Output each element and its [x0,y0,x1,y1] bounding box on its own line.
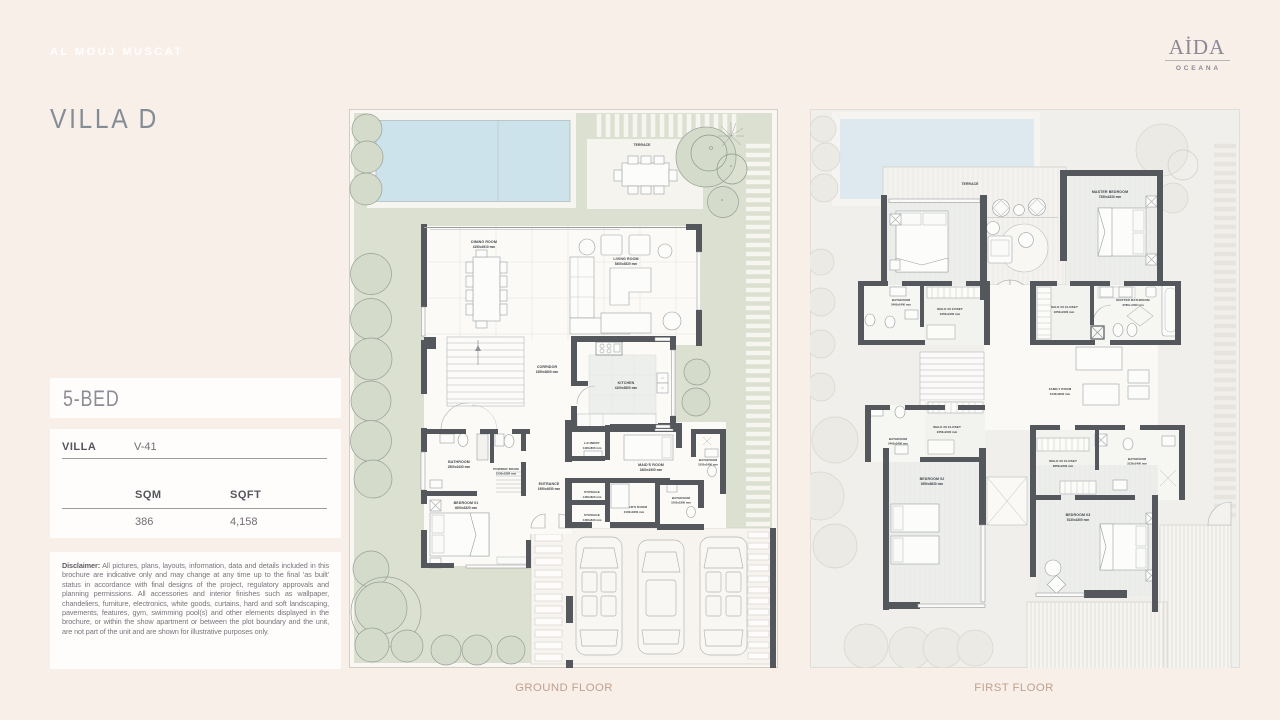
svg-text:1400x800 mm: 1400x800 mm [583,446,602,450]
svg-text:1550x2400 mm: 1550x2400 mm [698,463,718,467]
svg-text:2500x2430 mm: 2500x2430 mm [448,465,471,469]
svg-text:BEDROOM 01: BEDROOM 01 [454,501,479,505]
svg-text:BEDROOM 03: BEDROOM 03 [1066,513,1091,517]
svg-text:7350x4330 mm: 7350x4330 mm [1099,195,1122,199]
svg-text:4150x4910 mm: 4150x4910 mm [473,245,496,249]
svg-text:WALK IN CLOSET: WALK IN CLOSET [1050,305,1078,309]
svg-text:WALK IN COSET: WALK IN COSET [937,307,963,311]
svg-text:5400x4520 mm: 5400x4520 mm [615,262,638,266]
svg-text:1400x830 mm: 1400x830 mm [583,518,602,522]
svg-text:1950x4050 mm: 1950x4050 mm [538,487,561,491]
svg-text:BATHROOM: BATHROOM [699,458,718,462]
svg-text:2250x2400 mm: 2250x2400 mm [1054,310,1075,314]
svg-text:3130x2400 mm: 3130x2400 mm [1127,462,1147,466]
svg-text:ENTRANCE: ENTRANCE [539,482,560,486]
svg-text:1400x820 mm: 1400x820 mm [583,495,602,499]
svg-text:DINING ROOM: DINING ROOM [471,240,497,244]
svg-text:2350x2400 mm: 2350x2400 mm [937,430,958,434]
svg-text:WALK IN CLOSET: WALK IN CLOSET [933,425,961,429]
svg-text:LAUNDRY: LAUNDRY [584,441,601,445]
svg-text:TERRACE: TERRACE [961,182,979,186]
svg-text:2850x2400 mm: 2850x2400 mm [1053,464,1074,468]
svg-text:POWDER ROOM: POWDER ROOM [493,467,519,471]
svg-text:3950x5630 mm: 3950x5630 mm [921,482,944,486]
svg-text:MAID'S ROOM: MAID'S ROOM [638,463,664,467]
svg-text:MASTER BATHROOM: MASTER BATHROOM [1116,298,1150,302]
svg-text:5130x4300 mm: 5130x4300 mm [1067,518,1090,522]
svg-text:TERRACE: TERRACE [633,143,651,147]
svg-text:FAMILY ROOM: FAMILY ROOM [1049,387,1072,391]
svg-text:BATHROOM: BATHROOM [672,496,691,500]
svg-text:WALK IN CLOSET: WALK IN CLOSET [1049,459,1077,463]
svg-text:MASTER BEDROOM: MASTER BEDROOM [1092,190,1128,194]
svg-text:BATHROOM: BATHROOM [448,460,470,464]
svg-text:1950x3600 mm: 1950x3600 mm [536,370,559,374]
svg-text:BEDROOM 02: BEDROOM 02 [920,477,945,481]
svg-text:KITCHEN: KITCHEN [618,381,635,385]
svg-text:1500x1800 mm: 1500x1800 mm [671,501,691,505]
svg-text:2100x1800 mm: 2100x1800 mm [624,510,645,514]
svg-text:2460x2400 mm: 2460x2400 mm [891,303,911,307]
svg-text:BATHROOM: BATHROOM [889,437,908,441]
svg-text:LIVING ROOM: LIVING ROOM [613,257,638,261]
svg-text:STORAGE: STORAGE [584,513,600,517]
svg-text:4100x3800 mm: 4100x3800 mm [615,386,638,390]
svg-text:3400x1900 mm: 3400x1900 mm [640,468,663,472]
svg-text:BATHROOM: BATHROOM [1128,457,1147,461]
svg-text:4000x3320 mm: 4000x3320 mm [455,506,478,510]
svg-text:STORAGE: STORAGE [584,490,600,494]
svg-text:5440x3600 mm: 5440x3600 mm [1050,392,1071,396]
svg-text:BATHROOM: BATHROOM [892,298,911,302]
svg-text:CORRIDOR: CORRIDOR [537,365,558,369]
svg-text:2350x2400 mm: 2350x2400 mm [940,312,961,316]
